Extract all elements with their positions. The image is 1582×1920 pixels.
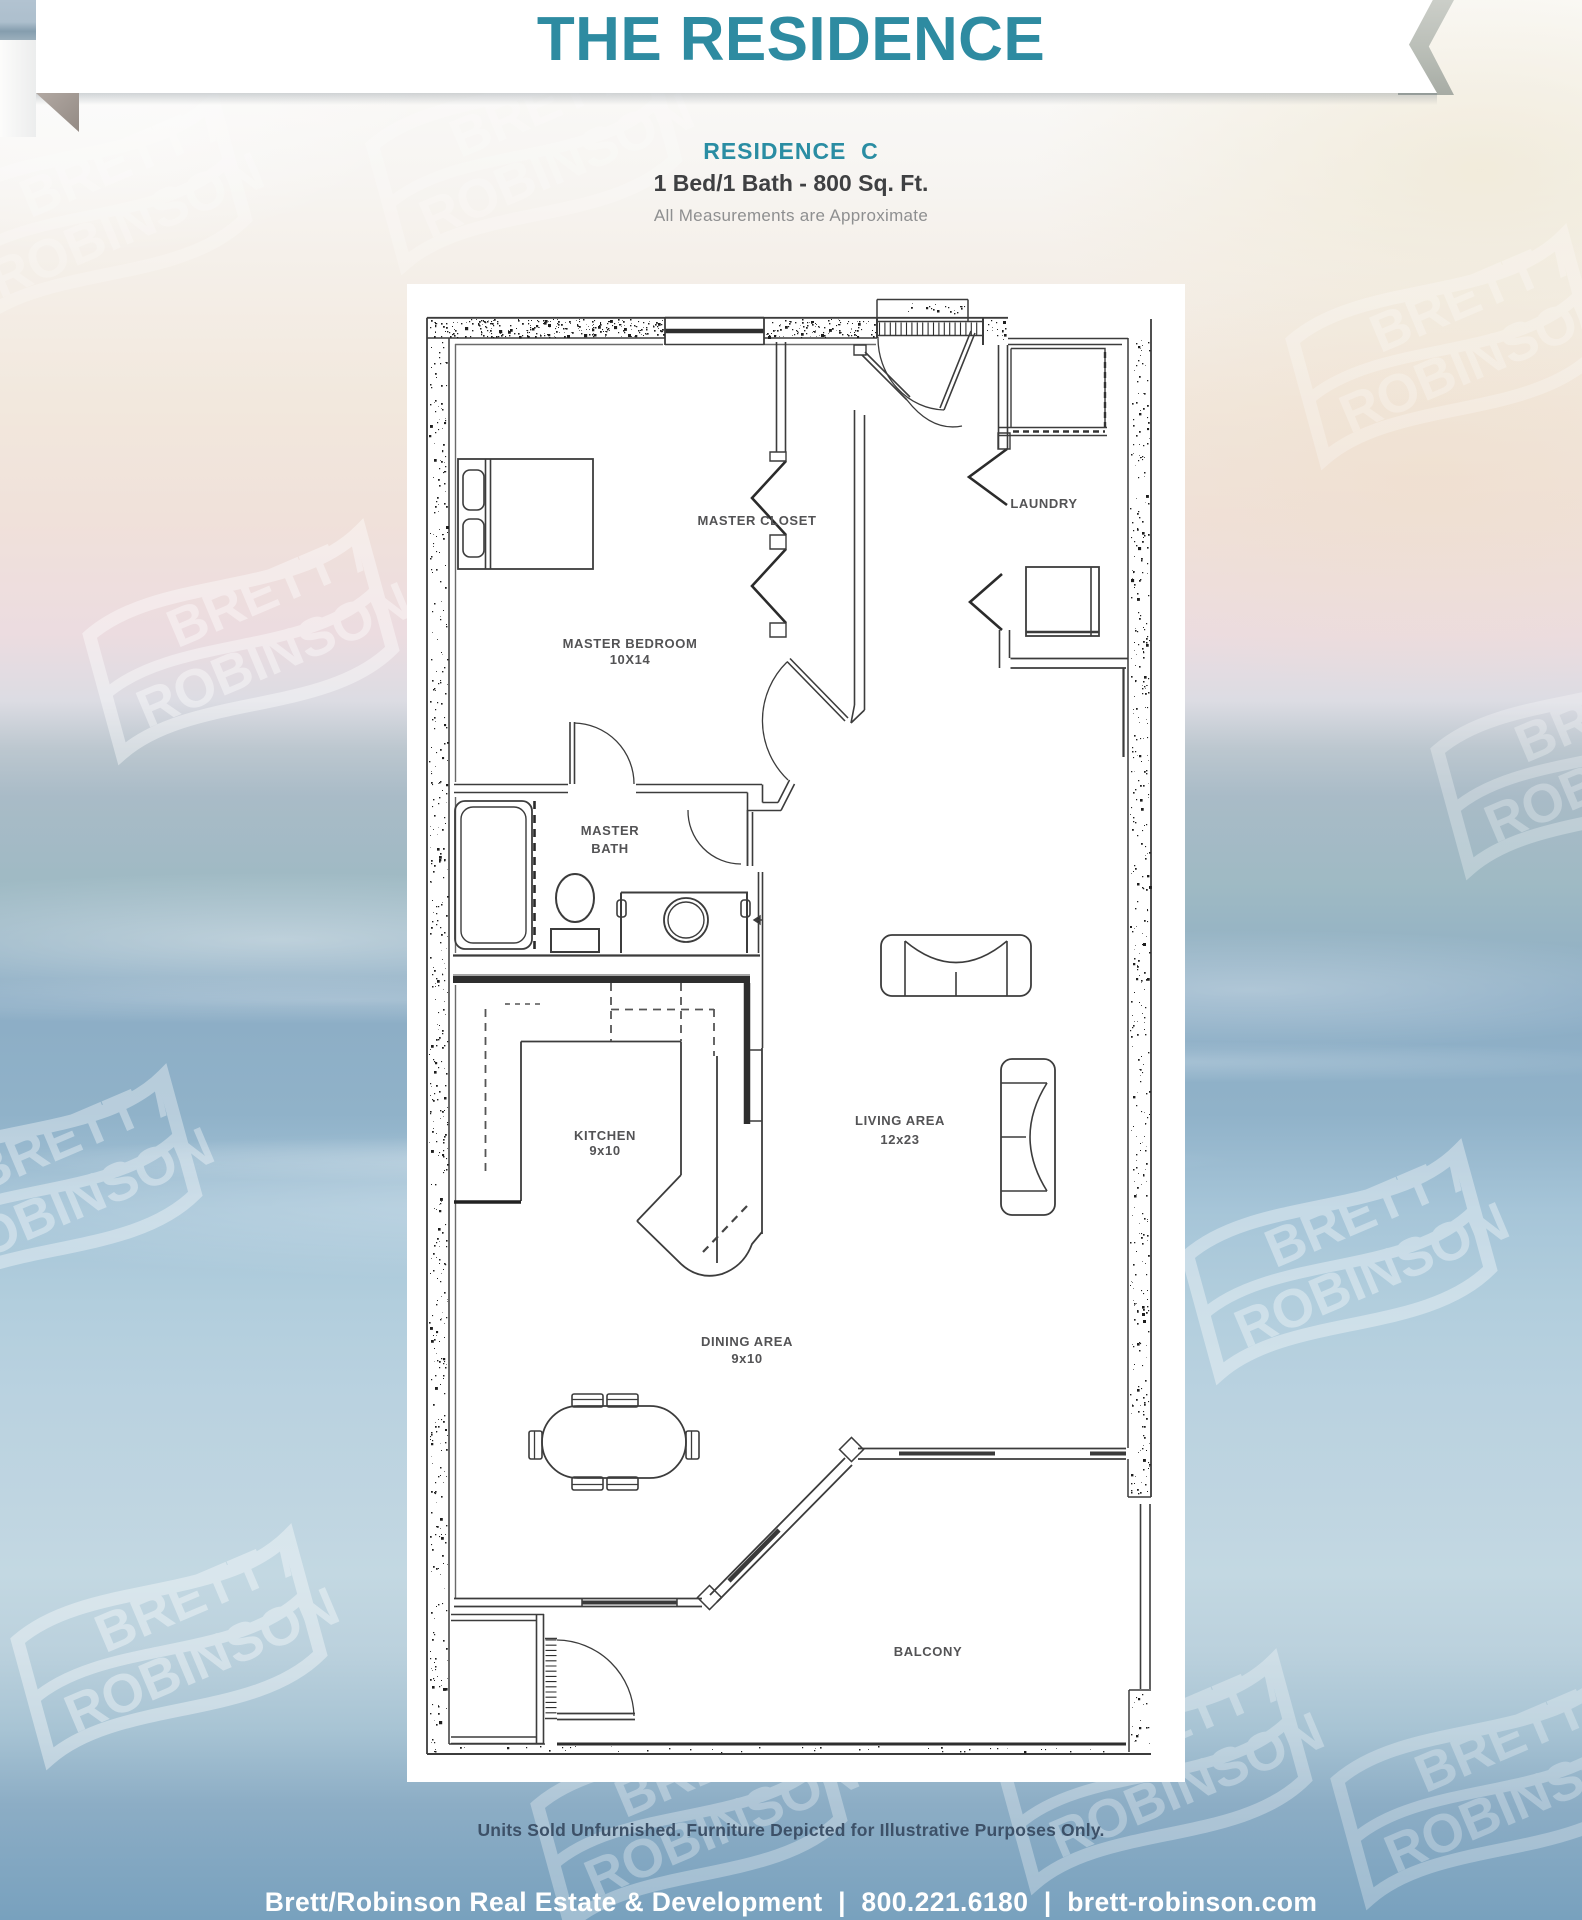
svg-text:KITCHEN: KITCHEN	[574, 1128, 636, 1143]
svg-text:DINING AREA: DINING AREA	[701, 1334, 793, 1349]
svg-text:LAUNDRY: LAUNDRY	[1010, 496, 1077, 511]
svg-text:BALCONY: BALCONY	[894, 1644, 962, 1659]
svg-text:MASTER CLOSET: MASTER CLOSET	[697, 513, 816, 528]
svg-text:9x10: 9x10	[589, 1143, 620, 1158]
svg-text:9x10: 9x10	[731, 1351, 762, 1366]
svg-text:12x23: 12x23	[880, 1132, 919, 1147]
svg-text:BATH: BATH	[591, 841, 629, 856]
svg-text:MASTER: MASTER	[581, 823, 640, 838]
svg-text:10X14: 10X14	[610, 652, 651, 667]
svg-text:LIVING AREA: LIVING AREA	[855, 1113, 945, 1128]
svg-text:MASTER BEDROOM: MASTER BEDROOM	[563, 636, 698, 651]
